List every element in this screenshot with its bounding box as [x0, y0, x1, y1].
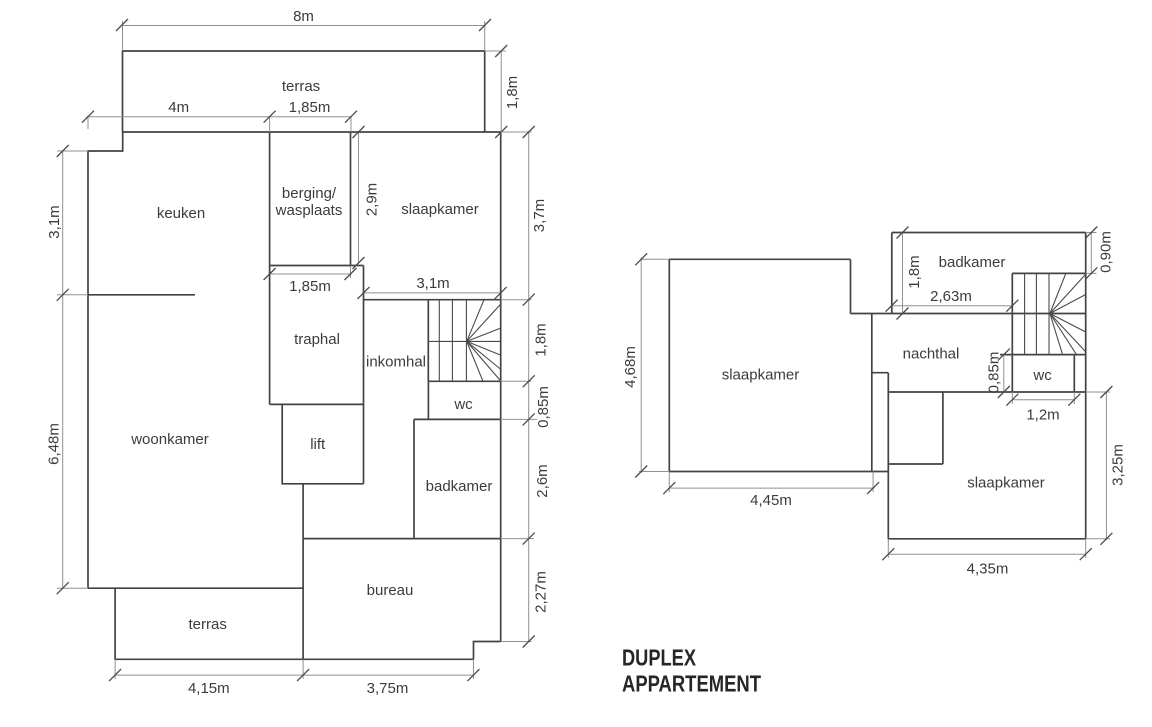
svg-text:1,85m: 1,85m	[289, 278, 331, 295]
svg-text:1,2m: 1,2m	[1026, 407, 1059, 424]
svg-text:3,7m: 3,7m	[531, 199, 548, 232]
svg-text:6,48m: 6,48m	[45, 423, 62, 465]
svg-text:badkamer: badkamer	[426, 478, 493, 495]
svg-text:traphal: traphal	[294, 331, 340, 348]
svg-text:2,6m: 2,6m	[534, 464, 551, 497]
svg-text:0,85m: 0,85m	[535, 386, 552, 428]
svg-text:4,35m: 4,35m	[967, 561, 1009, 578]
svg-text:2,63m: 2,63m	[930, 288, 972, 305]
svg-text:3,1m: 3,1m	[46, 205, 63, 238]
svg-text:badkamer: badkamer	[939, 254, 1006, 271]
svg-text:4,15m: 4,15m	[188, 680, 230, 697]
svg-text:terras: terras	[189, 616, 227, 633]
svg-text:0,90m: 0,90m	[1098, 231, 1115, 273]
svg-text:1,85m: 1,85m	[289, 99, 331, 116]
svg-text:3,75m: 3,75m	[367, 680, 409, 697]
svg-text:DUPLEX: DUPLEX	[622, 645, 697, 671]
svg-text:lift: lift	[310, 436, 326, 453]
svg-text:berging/: berging/	[282, 185, 337, 202]
svg-text:3,25m: 3,25m	[1110, 444, 1127, 486]
svg-text:slaapkamer: slaapkamer	[967, 475, 1045, 492]
svg-text:woonkamer: woonkamer	[130, 431, 209, 448]
svg-text:3,1m: 3,1m	[416, 275, 449, 292]
svg-text:1,8m: 1,8m	[533, 323, 550, 356]
svg-text:8m: 8m	[293, 8, 314, 25]
svg-text:terras: terras	[282, 78, 320, 95]
svg-text:4,45m: 4,45m	[750, 492, 792, 509]
svg-text:0,85m: 0,85m	[986, 352, 1003, 394]
svg-text:nachthal: nachthal	[903, 346, 960, 363]
svg-text:bureau: bureau	[367, 582, 414, 599]
svg-text:4m: 4m	[168, 99, 189, 116]
svg-text:2,9m: 2,9m	[364, 183, 381, 216]
svg-text:APPARTEMENT: APPARTEMENT	[622, 671, 761, 697]
svg-text:2,27m: 2,27m	[533, 571, 550, 613]
svg-text:wasplaats: wasplaats	[275, 202, 343, 219]
svg-text:1,8m: 1,8m	[906, 255, 923, 288]
svg-text:1,8m: 1,8m	[504, 76, 521, 109]
svg-text:keuken: keuken	[157, 205, 205, 222]
svg-text:inkomhal: inkomhal	[366, 354, 426, 371]
svg-text:wc: wc	[1032, 367, 1052, 384]
svg-text:wc: wc	[453, 396, 473, 413]
svg-text:slaapkamer: slaapkamer	[722, 367, 800, 384]
svg-text:slaapkamer: slaapkamer	[401, 201, 479, 218]
svg-text:4,68m: 4,68m	[622, 346, 639, 388]
